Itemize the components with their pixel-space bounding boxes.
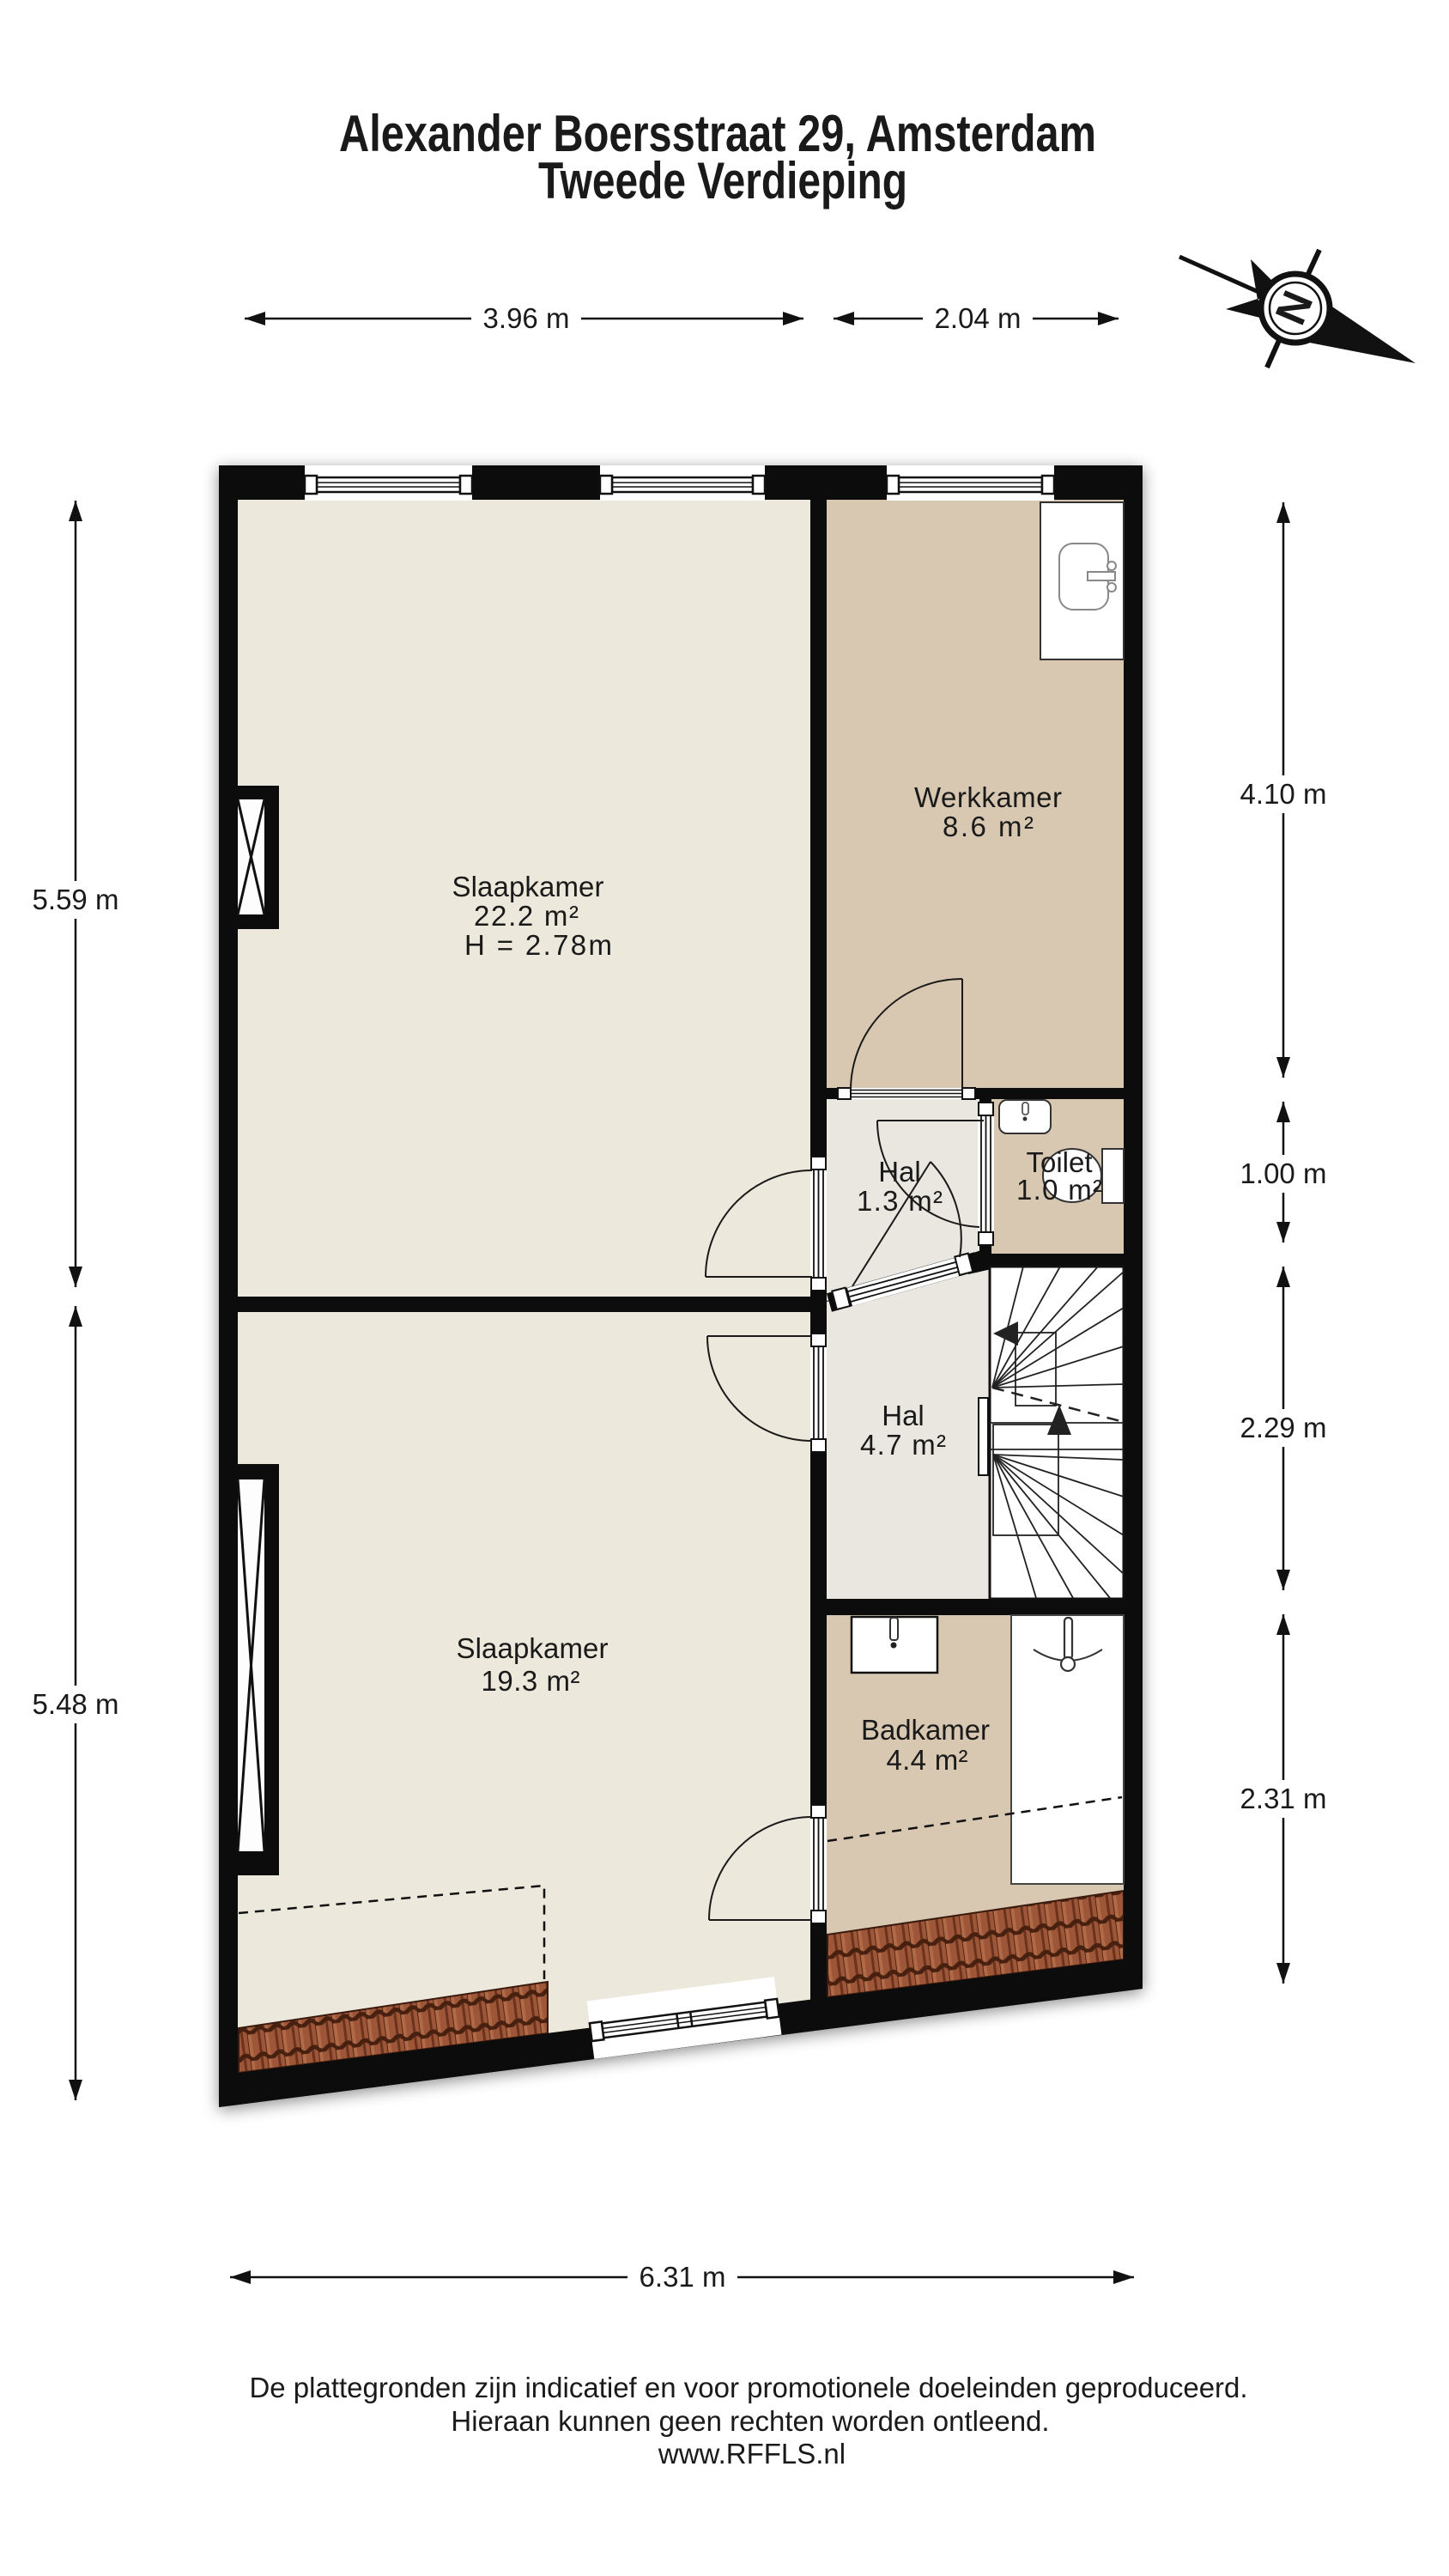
svg-text:4.10 m: 4.10 m [1240, 778, 1327, 810]
svg-text:H = 2.78m: H = 2.78m [464, 929, 612, 961]
svg-text:www.RFFLS.nl: www.RFFLS.nl [658, 2438, 846, 2470]
svg-text:Hal: Hal [882, 1400, 925, 1431]
svg-text:1.0 m²: 1.0 m² [1016, 1174, 1102, 1206]
svg-text:1.00 m: 1.00 m [1240, 1157, 1327, 1189]
svg-text:19.3 m²: 19.3 m² [482, 1665, 580, 1697]
svg-text:Slaapkamer: Slaapkamer [457, 1632, 609, 1664]
svg-text:8.6 m²: 8.6 m² [943, 811, 1034, 842]
svg-text:Hieraan kunnen geen rechten wo: Hieraan kunnen geen rechten worden ontle… [451, 2405, 1049, 2437]
svg-text:2.31 m: 2.31 m [1240, 1783, 1327, 1814]
svg-text:Hal: Hal [878, 1156, 921, 1188]
svg-text:Badkamer: Badkamer [861, 1714, 990, 1746]
svg-text:5.59 m: 5.59 m [33, 884, 119, 915]
svg-text:1.3 m²: 1.3 m² [857, 1185, 943, 1217]
svg-text:22.2 m²: 22.2 m² [474, 900, 579, 932]
svg-text:2.29 m: 2.29 m [1240, 1412, 1327, 1443]
svg-text:De plattegronden zijn indicati: De plattegronden zijn indicatief en voor… [249, 2372, 1247, 2403]
svg-text:Tweede Verdieping: Tweede Verdieping [538, 152, 907, 210]
svg-text:5.48 m: 5.48 m [33, 1688, 119, 1720]
svg-text:6.31 m: 6.31 m [640, 2261, 726, 2293]
svg-text:4.7 m²: 4.7 m² [860, 1429, 946, 1461]
svg-text:3.96 m: 3.96 m [483, 302, 570, 334]
svg-text:4.4 m²: 4.4 m² [887, 1744, 968, 1776]
svg-text:2.04 m: 2.04 m [935, 302, 1022, 334]
svg-text:Slaapkamer: Slaapkamer [452, 871, 604, 902]
svg-text:Werkkamer: Werkkamer [914, 781, 1062, 813]
